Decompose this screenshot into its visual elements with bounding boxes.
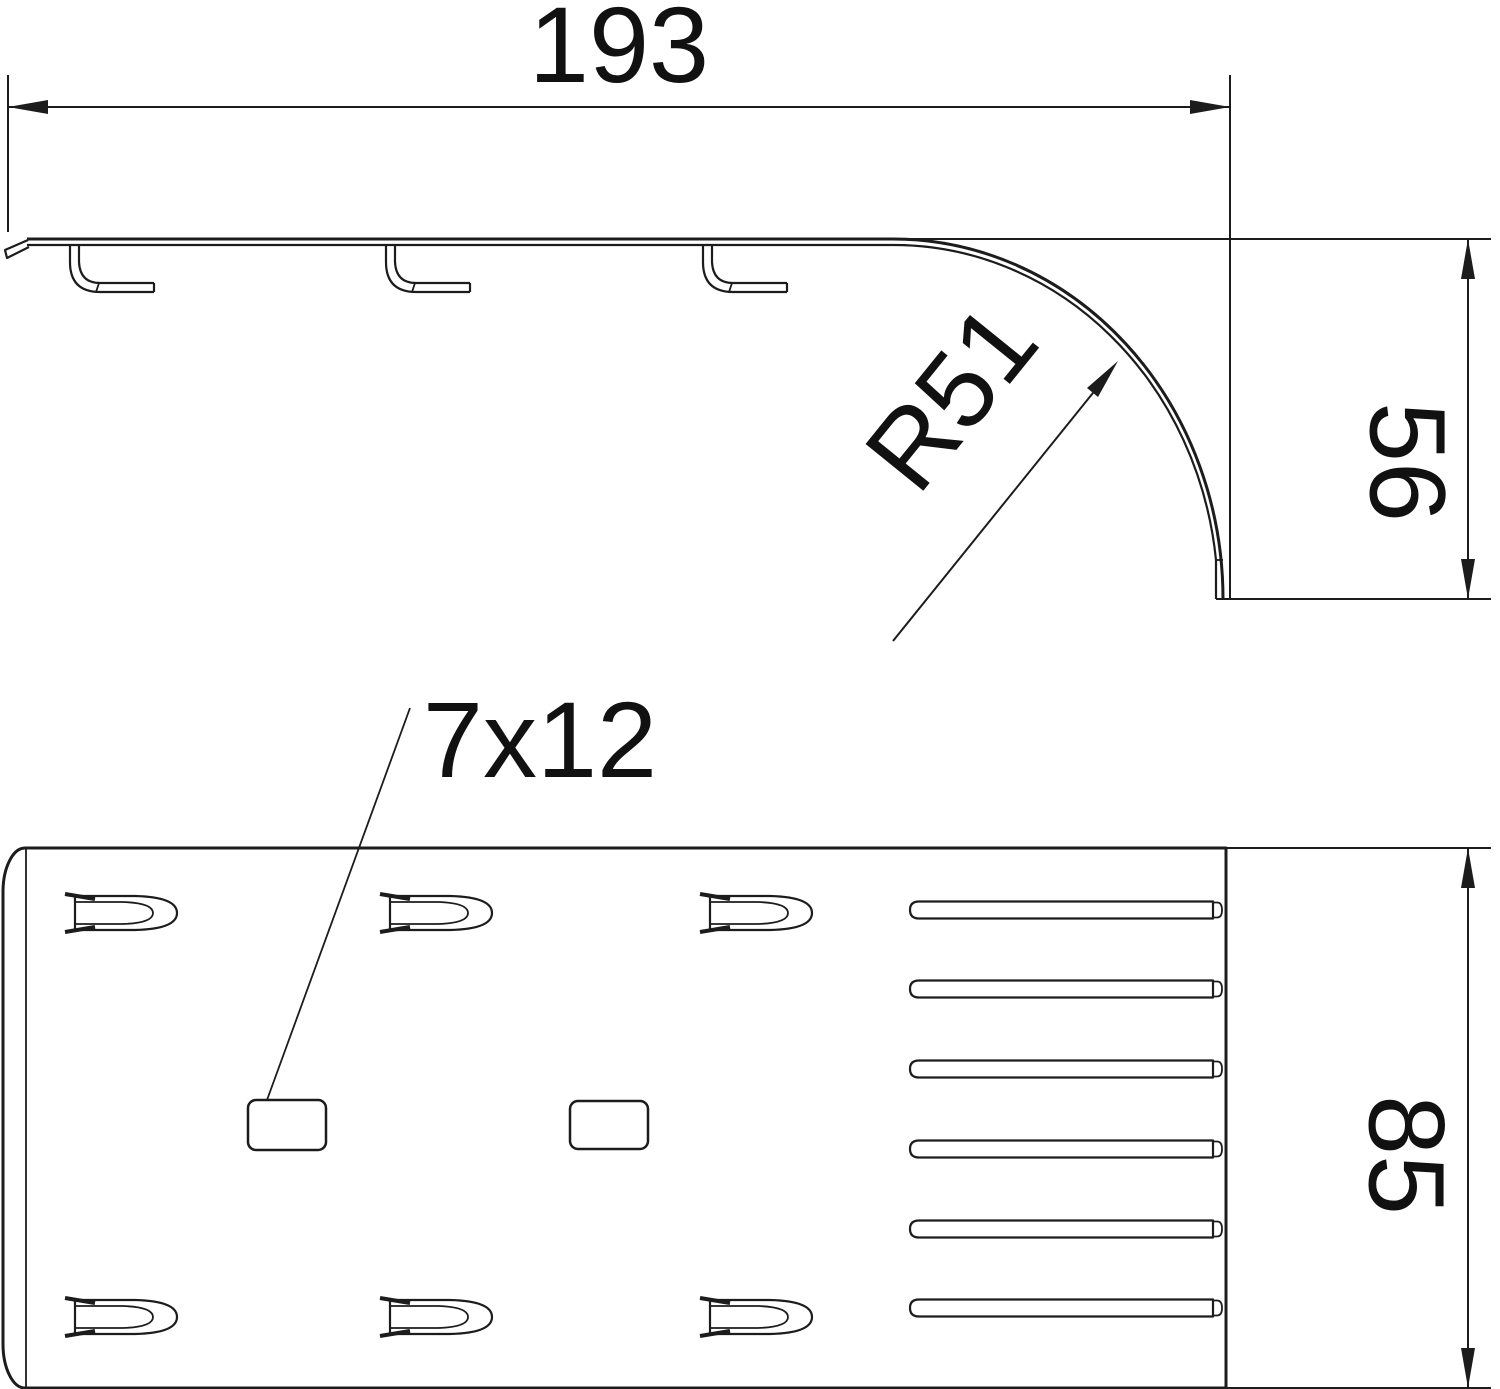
arrowhead-down <box>1461 559 1475 599</box>
dimension-7x12: 7x12 <box>267 679 657 1100</box>
plate-inner-edge <box>27 245 1216 599</box>
lance-tab <box>380 894 492 932</box>
lance-tab <box>65 894 177 932</box>
lance-tab-row-bottom <box>65 1298 812 1336</box>
rect-hole-7x12 <box>570 1101 648 1149</box>
left-bent-lip <box>5 240 29 258</box>
arrowhead-up <box>1461 848 1475 888</box>
long-slot <box>910 1061 1222 1078</box>
lance-tab <box>700 1298 812 1336</box>
long-slot <box>910 981 1222 998</box>
hook-2 <box>386 246 470 292</box>
lance-tab <box>65 1298 177 1336</box>
lance-tab <box>380 1298 492 1336</box>
dimension-r51: R51 <box>842 282 1118 641</box>
dim-label-length: 193 <box>529 0 709 105</box>
arrowhead-right <box>1190 100 1230 114</box>
drawing-sheet: 193 56 R51 7x12 85 <box>0 0 1500 1389</box>
dim-label-height: 56 <box>1348 402 1469 522</box>
long-slot <box>910 1300 1222 1317</box>
arrowhead-down <box>1461 1348 1475 1388</box>
long-slot <box>910 1141 1222 1158</box>
hook-3 <box>703 246 787 292</box>
arrowhead-up <box>1461 239 1475 279</box>
dim-label-width: 85 <box>1347 1095 1468 1215</box>
lance-tab-row-top <box>65 894 812 932</box>
lance-tab <box>700 894 812 932</box>
long-slot <box>910 1221 1222 1238</box>
dim-label-hole: 7x12 <box>423 679 657 800</box>
rect-hole-7x12 <box>248 1100 326 1150</box>
hook-1 <box>70 246 154 292</box>
dimension-193: 193 <box>8 0 1230 599</box>
arrowhead-left <box>8 100 48 114</box>
technical-drawing: 193 56 R51 7x12 85 <box>0 0 1500 1389</box>
plate-outline <box>3 848 1226 1388</box>
dim-label-radius: R51 <box>842 282 1061 512</box>
plan-view <box>3 848 1226 1388</box>
hole-leader-line <box>267 708 410 1100</box>
long-slot <box>910 902 1222 919</box>
side-view <box>5 239 1223 599</box>
long-slots <box>910 902 1222 1317</box>
arrowhead-radius <box>1087 361 1118 397</box>
dimension-85: 85 <box>1226 848 1491 1388</box>
plate-outer-edge <box>27 239 1223 599</box>
